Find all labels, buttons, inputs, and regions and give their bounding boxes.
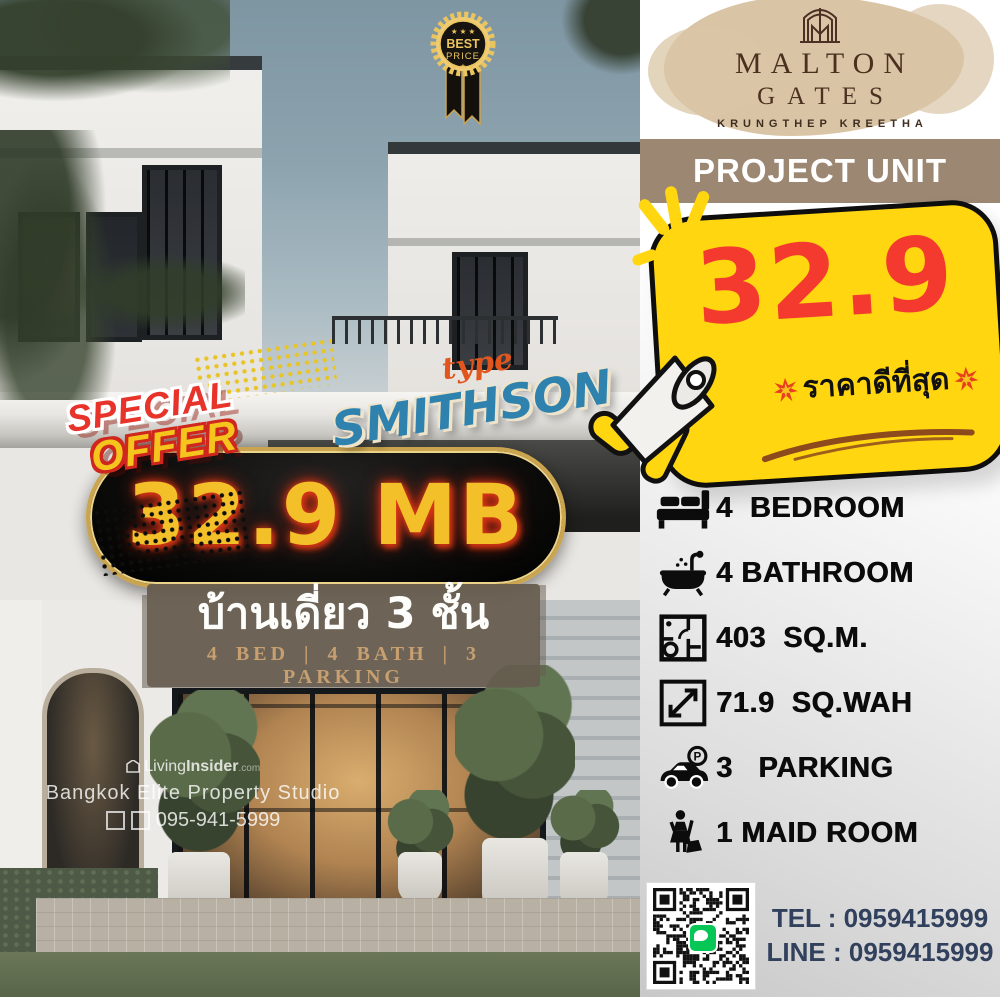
feature-row: 4 BEDROOM xyxy=(650,482,996,534)
feature-label: 4 BEDROOM xyxy=(716,492,905,525)
contact-line: LINE : 0959415999 xyxy=(764,936,996,970)
line-app-icon xyxy=(688,923,718,953)
watermark: LivingInsider.com Bangkok Elite Property… xyxy=(28,758,358,832)
bubble-caption: ราคาดีที่สุด xyxy=(801,356,951,412)
cornice-band xyxy=(388,238,640,246)
bubble-price: 32.9 xyxy=(652,221,998,344)
bed-icon xyxy=(650,486,716,530)
info-panel: MALTON GATES KRUNGTHEP KREETHA PROJECT U… xyxy=(640,0,1000,997)
tree-foliage xyxy=(556,0,640,80)
best-price-medal: ★ ★ ★ BEST PRICE ★ ★ ★ xyxy=(430,6,496,138)
floorplan-icon xyxy=(650,614,716,662)
feature-list: 4 BEDROOM 4 BATHROOM xyxy=(650,482,996,872)
project-logo: MALTON GATES KRUNGTHEP KREETHA xyxy=(640,0,1000,130)
property-ad-poster: ★ ★ ★ BEST PRICE ★ ★ ★ SPECIAL OFFER typ… xyxy=(0,0,1000,997)
watermark-phone-row: 095-941-5999 xyxy=(28,809,358,832)
medal-stars: ★ ★ ★ xyxy=(451,62,476,71)
house-photo: ★ ★ ★ BEST PRICE ★ ★ ★ SPECIAL OFFER typ… xyxy=(0,0,640,997)
feature-label: 403 SQ.M. xyxy=(716,622,868,655)
brand-name-2: GATES xyxy=(640,83,1000,111)
watermark-studio: Bangkok Elite Property Studio xyxy=(28,782,358,805)
contact-lines: TEL : 0959415999 LINE : 0959415999 xyxy=(764,902,996,970)
brand-light: Living xyxy=(144,758,186,775)
medal-stars: ★ ★ ★ xyxy=(451,27,476,36)
square-icon xyxy=(106,811,125,830)
roof-trim xyxy=(388,142,640,154)
brand-suffix: .com xyxy=(239,763,261,774)
house-description-banner: บ้านเดี่ยว 3 ชั้น 4 BED | 4 BATH | 3 PAR… xyxy=(147,584,540,687)
brand-bold: Insider xyxy=(186,758,238,775)
tree-foliage xyxy=(0,0,230,113)
bubble-caption-row: ราคาดีที่สุด xyxy=(771,354,980,414)
burst-icon xyxy=(953,364,981,392)
feature-row: P 3 PARKING xyxy=(650,742,996,794)
feature-row: 71.9 SQ.WAH xyxy=(650,677,996,729)
feature-label: 71.9 SQ.WAH xyxy=(716,687,912,720)
feature-label: 3 PARKING xyxy=(716,752,893,785)
area-icon xyxy=(650,679,716,727)
watermark-brand: LivingInsider.com xyxy=(28,758,358,776)
qr-code xyxy=(646,882,756,990)
underline-swoosh xyxy=(759,422,980,465)
brand-name-1: MALTON xyxy=(640,47,1000,81)
parking-icon: P xyxy=(650,745,716,792)
gate-icon xyxy=(640,4,1000,49)
maid-icon xyxy=(650,808,716,858)
contact-tel: TEL : 0959415999 xyxy=(764,902,996,936)
square-icon xyxy=(131,811,150,830)
planter-pot xyxy=(398,852,442,904)
living-insider-logo-icon xyxy=(126,760,140,773)
feature-label: 1 MAID ROOM xyxy=(716,817,918,850)
house-description-subtitle: 4 BED | 4 BATH | 3 PARKING xyxy=(147,643,540,689)
tree-foliage xyxy=(45,245,245,340)
medal-text: PRICE xyxy=(446,51,480,62)
megaphone-icon xyxy=(585,330,717,485)
project-unit-header: PROJECT UNIT xyxy=(640,139,1000,203)
contact-section: TEL : 0959415999 LINE : 0959415999 xyxy=(646,880,996,992)
watermark-phone: 095-941-5999 xyxy=(156,809,281,832)
feature-row: 1 MAID ROOM xyxy=(650,807,996,859)
feature-row: 4 BATHROOM xyxy=(650,547,996,599)
feature-label: 4 BATHROOM xyxy=(716,557,914,590)
grass xyxy=(0,952,640,997)
svg-text:P: P xyxy=(693,750,701,763)
medal-text: BEST xyxy=(446,37,480,51)
burst-icon xyxy=(772,375,800,403)
house-description-title: บ้านเดี่ยว 3 ชั้น xyxy=(147,590,540,639)
bathtub-icon xyxy=(650,549,716,597)
feature-row: 403 SQ.M. xyxy=(650,612,996,664)
brand-location: KRUNGTHEP KREETHA xyxy=(640,118,1000,130)
